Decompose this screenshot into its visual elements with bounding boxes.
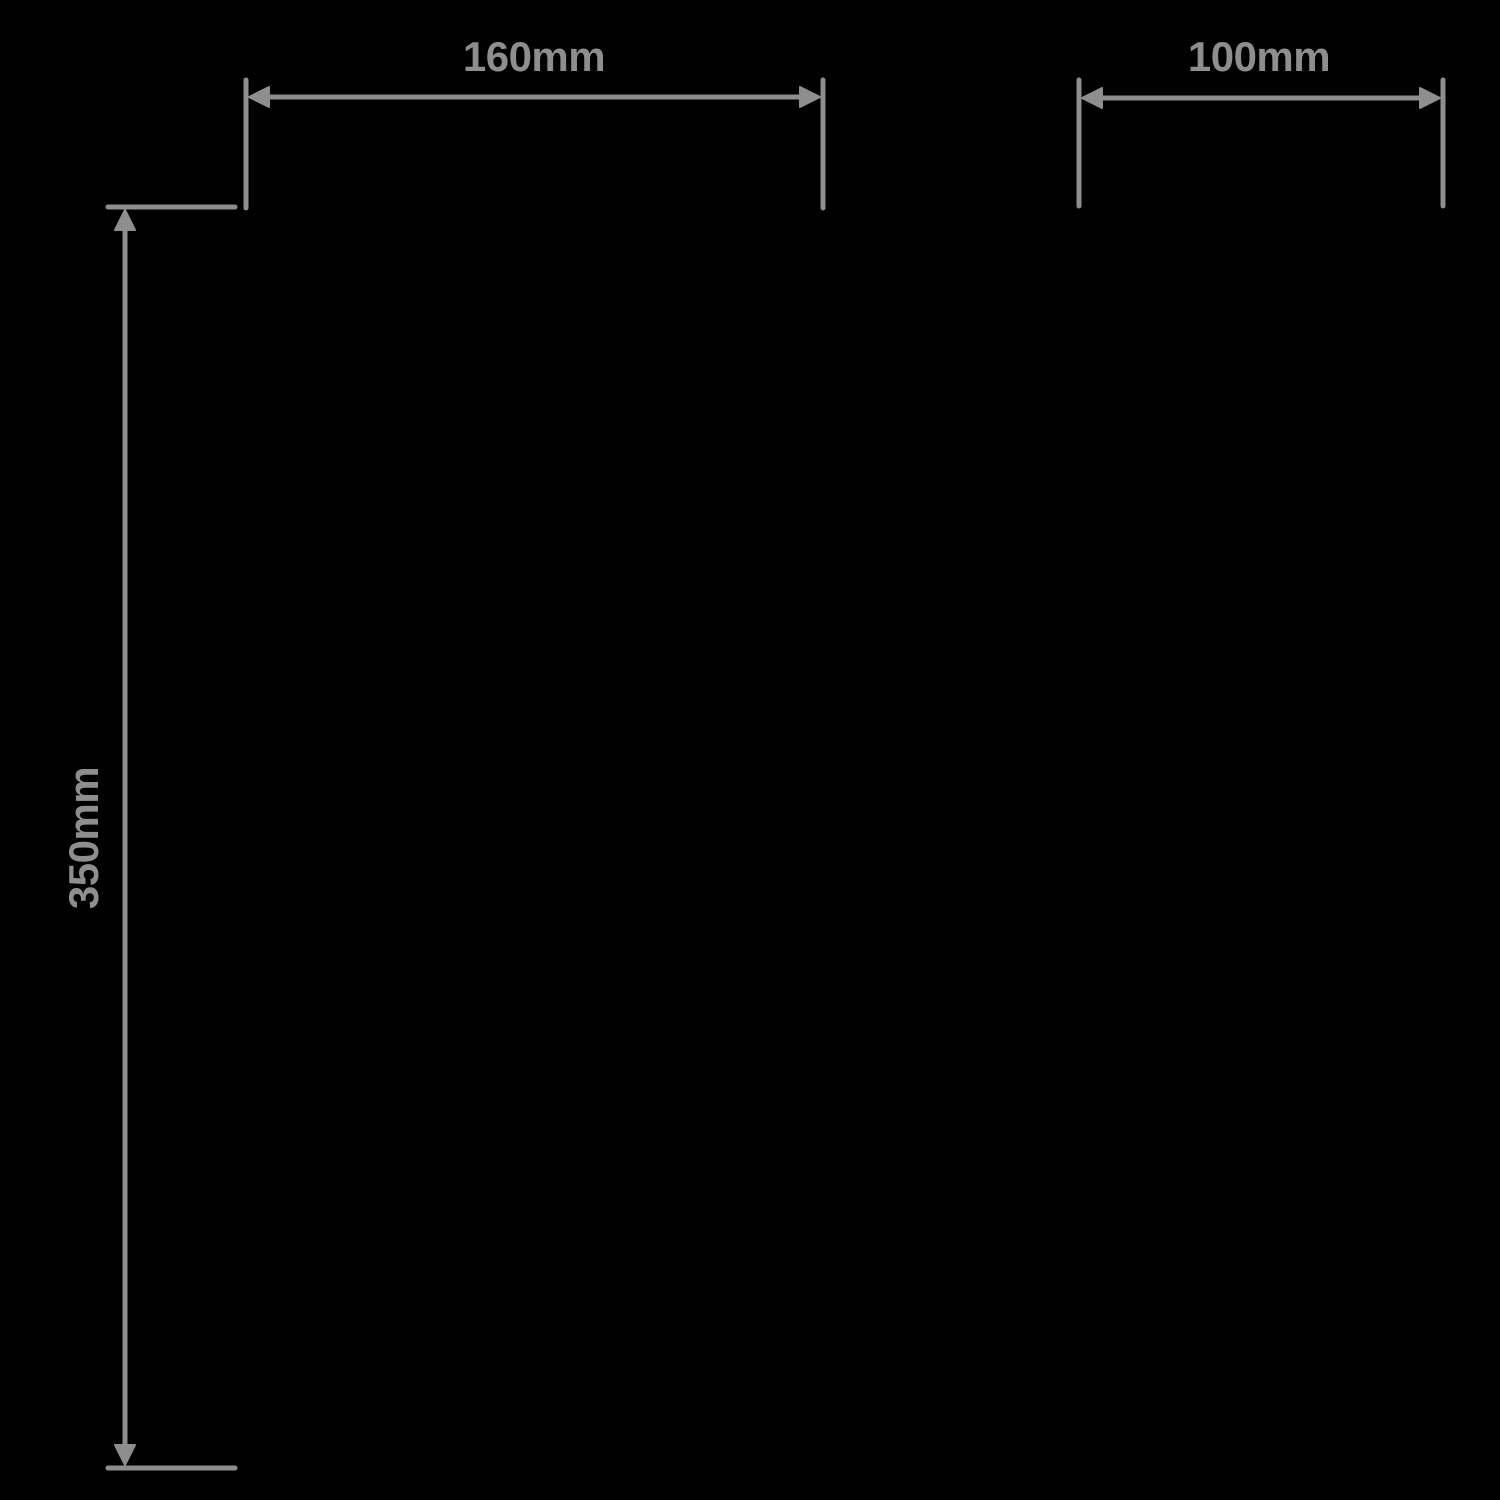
depth-arrow-right-icon	[1420, 88, 1440, 108]
height-dimension-group	[108, 207, 235, 1468]
depth-arrow-left-icon	[1082, 88, 1102, 108]
depth-dimension-label: 100mm	[1139, 36, 1379, 78]
width-dimension-label: 160mm	[414, 36, 654, 78]
dimension-diagram-canvas: 160mm 100mm 350mm	[0, 0, 1500, 1500]
width-arrow-right-icon	[800, 87, 820, 107]
height-arrow-up-icon	[115, 210, 135, 230]
depth-dimension-group	[1079, 80, 1443, 206]
width-arrow-left-icon	[249, 87, 269, 107]
dimension-drawing	[0, 0, 1500, 1500]
height-dimension-label: 350mm	[63, 718, 105, 958]
height-arrow-down-icon	[115, 1445, 135, 1465]
width-dimension-group	[246, 80, 823, 208]
